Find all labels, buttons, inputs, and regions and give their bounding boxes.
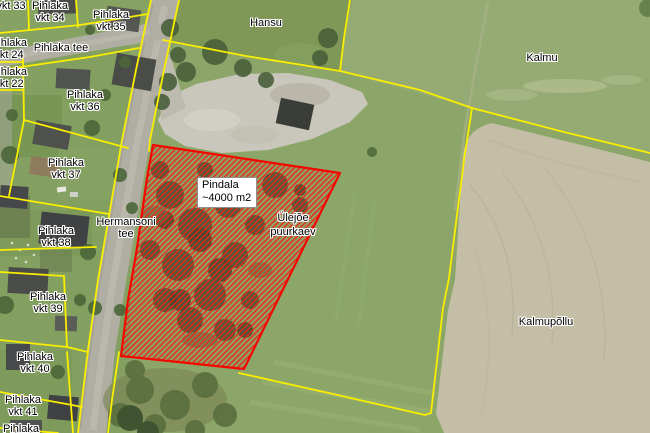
parcel-label-pihlaka-vkt-38: Pihlakavkt 38 bbox=[38, 225, 74, 249]
parcel-label-kalmupollu: Kalmupõllu bbox=[519, 316, 573, 328]
area-measurement-box: Pindala ~4000 m2 bbox=[197, 177, 257, 208]
parcel-label-pihlaka-vkt-40: Pihlakavkt 40 bbox=[17, 351, 53, 375]
area-box-title: Pindala bbox=[202, 179, 251, 192]
road-label-pihlaka-tee: Pihlaka tee bbox=[34, 42, 88, 54]
map-viewport[interactable]: vkt 33 Pihlakavkt 34 Pihlakavkt 35 Pihla… bbox=[0, 0, 650, 433]
parcel-label-pihlaka-vkt-35: Pihlakavkt 35 bbox=[93, 9, 129, 33]
field-kalmupollu bbox=[436, 123, 650, 433]
parcel-label-pihlaka-42: Pihlaka bbox=[3, 423, 39, 433]
parcel-label-pihlaka-vkt-39: Pihlakavkt 39 bbox=[30, 291, 66, 315]
parcel-label-vkt-33: vkt 33 bbox=[0, 0, 26, 12]
road-label-hermansoni-tee: Hermansonitee bbox=[96, 216, 155, 240]
parcel-label-pihlaka-vkt-41: Pihlakavkt 41 bbox=[5, 394, 41, 418]
parcel-label-pihlaka-vkt-36: Pihlakavkt 36 bbox=[67, 89, 103, 113]
parcel-label-pihlaka-vkt-37: Pihlakavkt 37 bbox=[48, 157, 84, 181]
parcel-label-pihlaka-vkt-24: Pihlakavkt 24 bbox=[0, 37, 27, 61]
parcel-label-kalmu: Kalmu bbox=[526, 52, 557, 64]
area-box-value: ~4000 m2 bbox=[202, 192, 251, 205]
parcel-label-pihlaka-vkt-34: Pihlakavkt 34 bbox=[32, 0, 68, 24]
parcel-label-hansu: Hansu bbox=[250, 17, 282, 29]
parcel-label-pihlaka-vkt-22: Pihlakavkt 22 bbox=[0, 66, 27, 90]
poi-label-ulejoe-puurkaev: Ülejõepuurkaev bbox=[270, 211, 315, 239]
